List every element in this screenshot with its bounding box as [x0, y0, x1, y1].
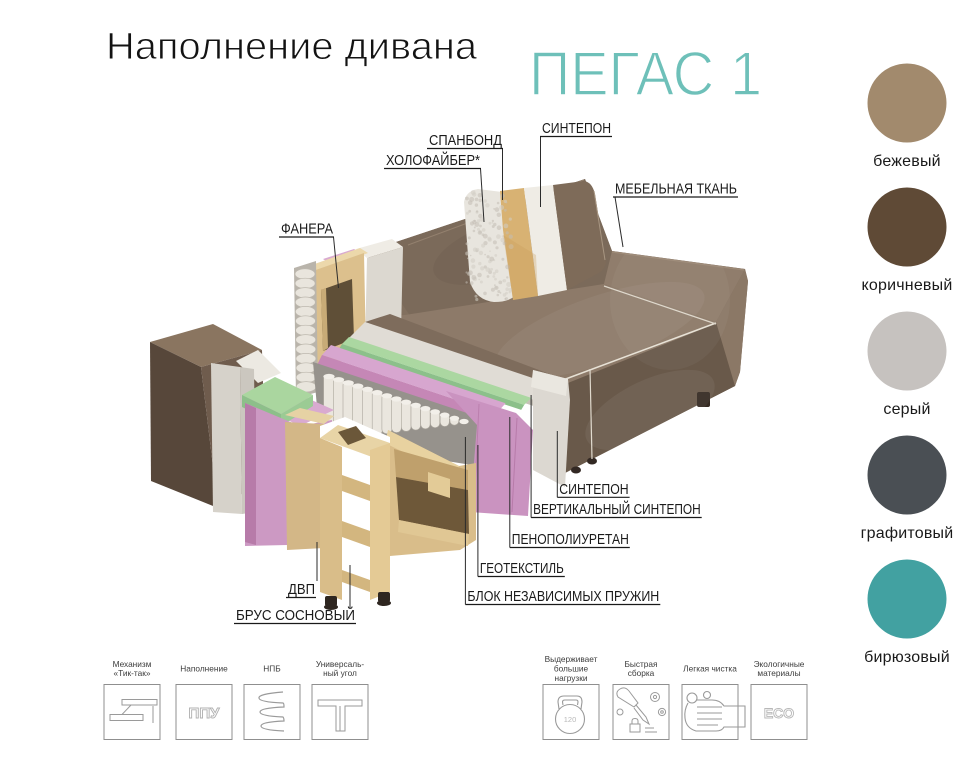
svg-text:ГЕОТЕКСТИЛЬ: ГЕОТЕКСТИЛЬ: [480, 560, 564, 577]
svg-text:Наполнение: Наполнение: [180, 664, 228, 674]
svg-text:сборка: сборка: [628, 668, 655, 678]
svg-text:ПЕГАС 1: ПЕГАС 1: [529, 40, 762, 109]
svg-text:ECO: ECO: [764, 705, 794, 721]
svg-text:серый: серый: [883, 401, 930, 418]
svg-text:ВЕРТИКАЛЬНЫЙ СИНТЕПОН: ВЕРТИКАЛЬНЫЙ СИНТЕПОН: [533, 500, 701, 518]
svg-text:Легкая чистка: Легкая чистка: [683, 664, 737, 674]
svg-text:ДВП: ДВП: [288, 581, 315, 598]
svg-text:графитовый: графитовый: [861, 525, 954, 542]
svg-text:ный угол: ный угол: [323, 668, 357, 678]
svg-text:МЕБЕЛЬНАЯ ТКАНЬ: МЕБЕЛЬНАЯ ТКАНЬ: [615, 181, 737, 198]
svg-text:бирюзовый: бирюзовый: [864, 649, 950, 666]
svg-text:БЛОК НЕЗАВИСИМЫХ ПРУЖИН: БЛОК НЕЗАВИСИМЫХ ПРУЖИН: [467, 588, 659, 605]
svg-text:нагрузки: нагрузки: [555, 673, 588, 683]
svg-text:бежевый: бежевый: [873, 153, 941, 170]
svg-text:ФАНЕРА: ФАНЕРА: [281, 221, 333, 238]
svg-text:ПЕНОПОЛИУРЕТАН: ПЕНОПОЛИУРЕТАН: [512, 531, 629, 548]
svg-text:СПАНБОНД: СПАНБОНД: [429, 132, 502, 149]
svg-text:Выдерживает: Выдерживает: [545, 654, 598, 664]
svg-text:большие: большие: [554, 664, 589, 674]
svg-text:«Тик-так»: «Тик-так»: [114, 668, 151, 678]
svg-text:Наполнение дивана: Наполнение дивана: [106, 26, 478, 68]
svg-text:коричневый: коричневый: [862, 277, 953, 294]
svg-text:120: 120: [564, 715, 577, 724]
svg-text:БРУС СОСНОВЫЙ: БРУС СОСНОВЫЙ: [236, 606, 355, 624]
svg-text:СИНТЕПОН: СИНТЕПОН: [542, 120, 611, 137]
svg-text:ППУ: ППУ: [189, 705, 221, 722]
svg-text:СИНТЕПОН: СИНТЕПОН: [559, 481, 628, 498]
svg-text:НПБ: НПБ: [263, 664, 281, 674]
svg-text:ХОЛОФАЙБЕР*: ХОЛОФАЙБЕР*: [386, 151, 480, 169]
svg-text:материалы: материалы: [757, 668, 800, 678]
